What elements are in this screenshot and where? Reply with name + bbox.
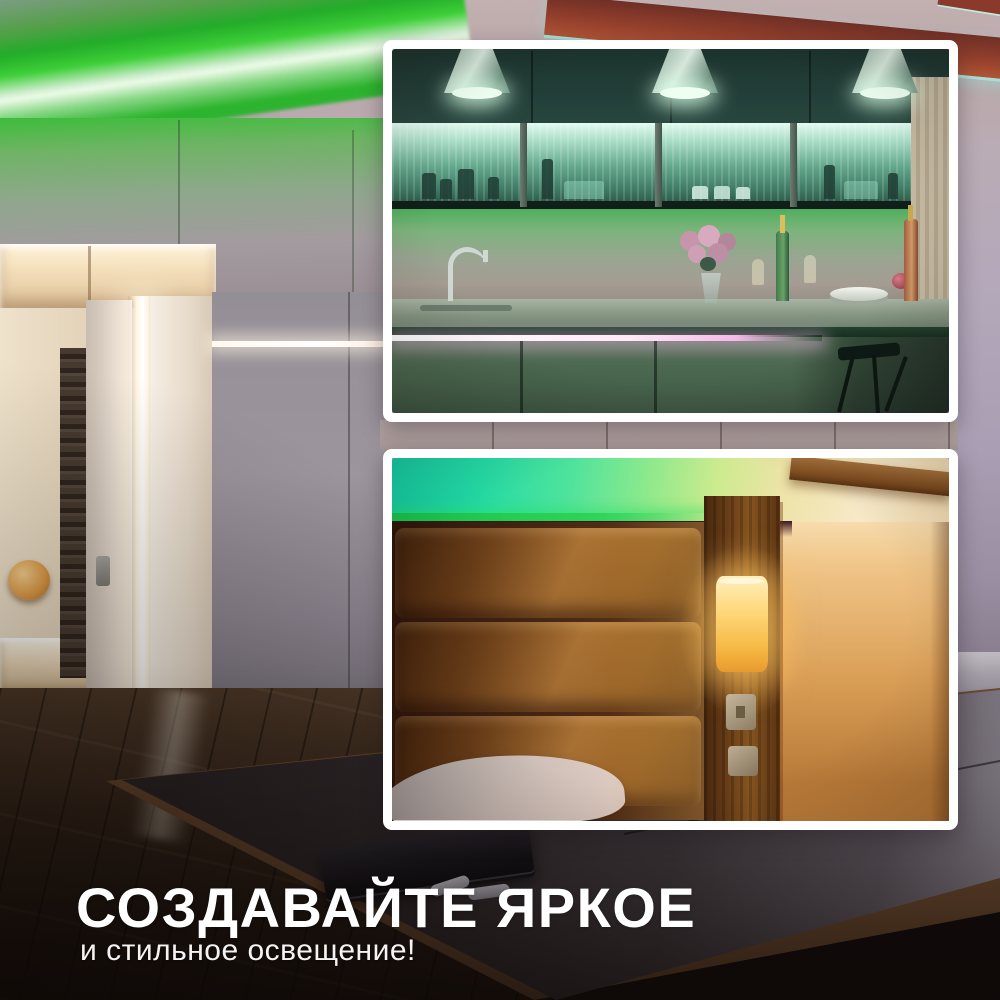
bottle xyxy=(542,159,553,199)
bottle xyxy=(824,165,835,199)
warm-wall xyxy=(780,502,949,821)
power-outlet xyxy=(728,746,758,776)
stem-glasses xyxy=(844,181,878,199)
shelf-post xyxy=(520,123,527,207)
wine-glass xyxy=(752,259,764,285)
wall-corner-line xyxy=(780,502,783,821)
pendant-lamp xyxy=(652,49,718,99)
niche-divider xyxy=(88,246,91,308)
glassware xyxy=(888,173,898,199)
countertop xyxy=(392,299,949,329)
glassware xyxy=(488,177,499,199)
cup xyxy=(692,186,708,199)
headline-text: СОЗДАВАЙТЕ ЯРКОЕ xyxy=(76,880,696,936)
photo-kitchen-inset xyxy=(383,40,958,422)
plate-stack xyxy=(830,287,888,301)
wall-shadow-edge xyxy=(930,502,949,821)
photo-bedroom-inset xyxy=(383,449,958,830)
headboard-light-gradient xyxy=(392,522,704,820)
stem-glasses xyxy=(564,181,604,199)
wine-glass xyxy=(804,255,816,283)
glassware-silhouettes xyxy=(392,123,912,207)
decor-glass-ball xyxy=(8,560,50,600)
cup xyxy=(714,186,730,199)
light-switch xyxy=(726,694,756,730)
door-handle xyxy=(96,556,110,586)
shelf-post xyxy=(655,123,662,207)
wine-bottle-green xyxy=(776,231,789,301)
cabinet-seam xyxy=(654,341,657,413)
bedroom-scene xyxy=(392,458,949,821)
kitchen-scene xyxy=(392,49,949,413)
wine-bottle-rose xyxy=(904,219,918,301)
caption: СОЗДАВАЙТЕ ЯРКОЕ и стильное освещение! xyxy=(76,880,956,990)
glassware xyxy=(440,179,452,199)
cup xyxy=(736,187,750,199)
wall-sconce-lamp xyxy=(716,576,768,672)
faucet xyxy=(448,247,486,301)
cabinet-seam xyxy=(520,341,523,413)
pendant-lamp xyxy=(444,49,510,99)
banner-root: СОЗДАВАЙТЕ ЯРКОЕ и стильное освещение! xyxy=(0,0,1000,1000)
pendant-lamp xyxy=(852,49,918,99)
shelf-post xyxy=(790,123,797,207)
under-counter-led-strip xyxy=(392,335,822,341)
glassware xyxy=(458,169,474,199)
closet-band xyxy=(380,420,958,450)
stone-column xyxy=(60,348,88,678)
sink xyxy=(420,305,512,311)
subheadline-text: и стильное освещение! xyxy=(80,936,416,966)
glassware xyxy=(422,173,436,199)
horizontal-led-strip xyxy=(212,341,388,347)
